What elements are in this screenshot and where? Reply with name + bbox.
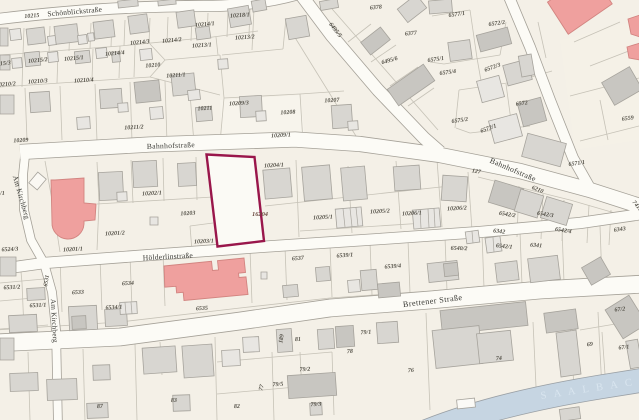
svg-text:78: 78 — [347, 349, 353, 355]
svg-text:76: 76 — [408, 368, 414, 374]
svg-text:79/3: 79/3 — [310, 402, 321, 409]
svg-text:10206/1: 10206/1 — [402, 210, 422, 217]
svg-text:6539/1: 6539/1 — [336, 252, 353, 259]
svg-text:6539/4: 6539/4 — [384, 263, 401, 270]
svg-text:74: 74 — [496, 356, 502, 362]
svg-text:83: 83 — [171, 398, 177, 404]
svg-text:6534/1: 6534/1 — [105, 305, 122, 312]
svg-text:79/5: 79/5 — [272, 382, 283, 389]
svg-text:67/2: 67/2 — [614, 307, 625, 314]
svg-text:10209: 10209 — [13, 138, 28, 145]
svg-text:6531/2: 6531/2 — [3, 285, 20, 292]
svg-text:10201/2: 10201/2 — [105, 230, 125, 237]
svg-text:6535: 6535 — [196, 306, 208, 313]
svg-text:79/2: 79/2 — [299, 367, 310, 374]
svg-text:6377: 6377 — [405, 30, 418, 37]
svg-text:Bahnhofstraße: Bahnhofstraße — [147, 140, 196, 151]
svg-text:10205/2: 10205/2 — [370, 208, 390, 215]
svg-text:6342: 6342 — [493, 228, 506, 235]
svg-text:6524/3: 6524/3 — [1, 247, 18, 254]
svg-text:10211/2: 10211/2 — [124, 124, 144, 131]
svg-text:10205/1: 10205/1 — [313, 214, 333, 221]
svg-text:10206/2: 10206/2 — [447, 205, 467, 212]
svg-text:67/1: 67/1 — [618, 345, 629, 352]
svg-text:10201/1: 10201/1 — [63, 246, 83, 253]
svg-text:10202/1: 10202/1 — [142, 190, 162, 197]
svg-text:1/1: 1/1 — [0, 191, 5, 197]
svg-text:10204/1: 10204/1 — [264, 162, 284, 169]
svg-text:10209/3: 10209/3 — [229, 100, 249, 107]
svg-text:10211: 10211 — [197, 106, 212, 113]
svg-text:10209/1: 10209/1 — [271, 132, 291, 139]
svg-text:6533: 6533 — [72, 290, 84, 297]
svg-text:6537: 6537 — [292, 256, 305, 263]
svg-text:6531/1: 6531/1 — [29, 303, 46, 310]
svg-text:6378: 6378 — [370, 4, 382, 11]
svg-text:10208: 10208 — [280, 110, 295, 117]
svg-text:10203: 10203 — [180, 211, 195, 218]
svg-text:82: 82 — [234, 404, 240, 410]
svg-text:10203/1: 10203/1 — [194, 238, 214, 245]
svg-text:6540/2: 6540/2 — [451, 246, 468, 253]
svg-text:69: 69 — [587, 342, 594, 349]
svg-text:81: 81 — [295, 337, 301, 343]
svg-text:10207: 10207 — [324, 98, 340, 105]
svg-text:79/1: 79/1 — [360, 330, 371, 337]
svg-text:10210: 10210 — [145, 62, 160, 69]
svg-text:16204: 16204 — [252, 211, 268, 218]
svg-text:6534: 6534 — [122, 281, 134, 288]
svg-text:6341: 6341 — [530, 243, 542, 250]
